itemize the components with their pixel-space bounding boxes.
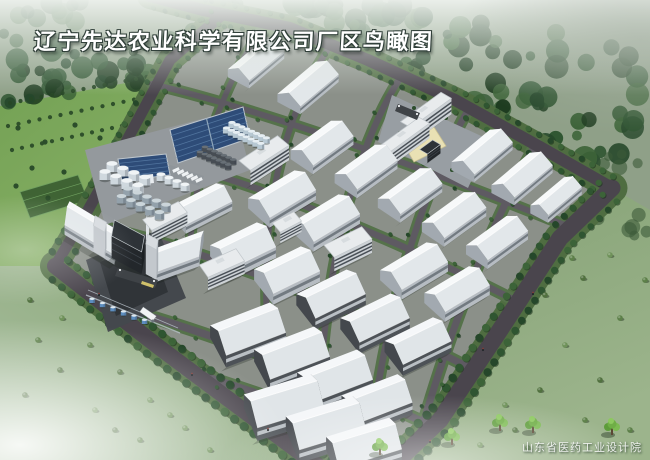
birdseye-rendering: 辽宁先达农业科学有限公司厂区鸟瞰图 山东省医药工业设计院 — [0, 0, 650, 460]
scene-svg — [0, 0, 650, 460]
designer-credit: 山东省医药工业设计院 — [522, 439, 642, 455]
page-title: 辽宁先达农业科学有限公司厂区鸟瞰图 — [33, 24, 434, 56]
